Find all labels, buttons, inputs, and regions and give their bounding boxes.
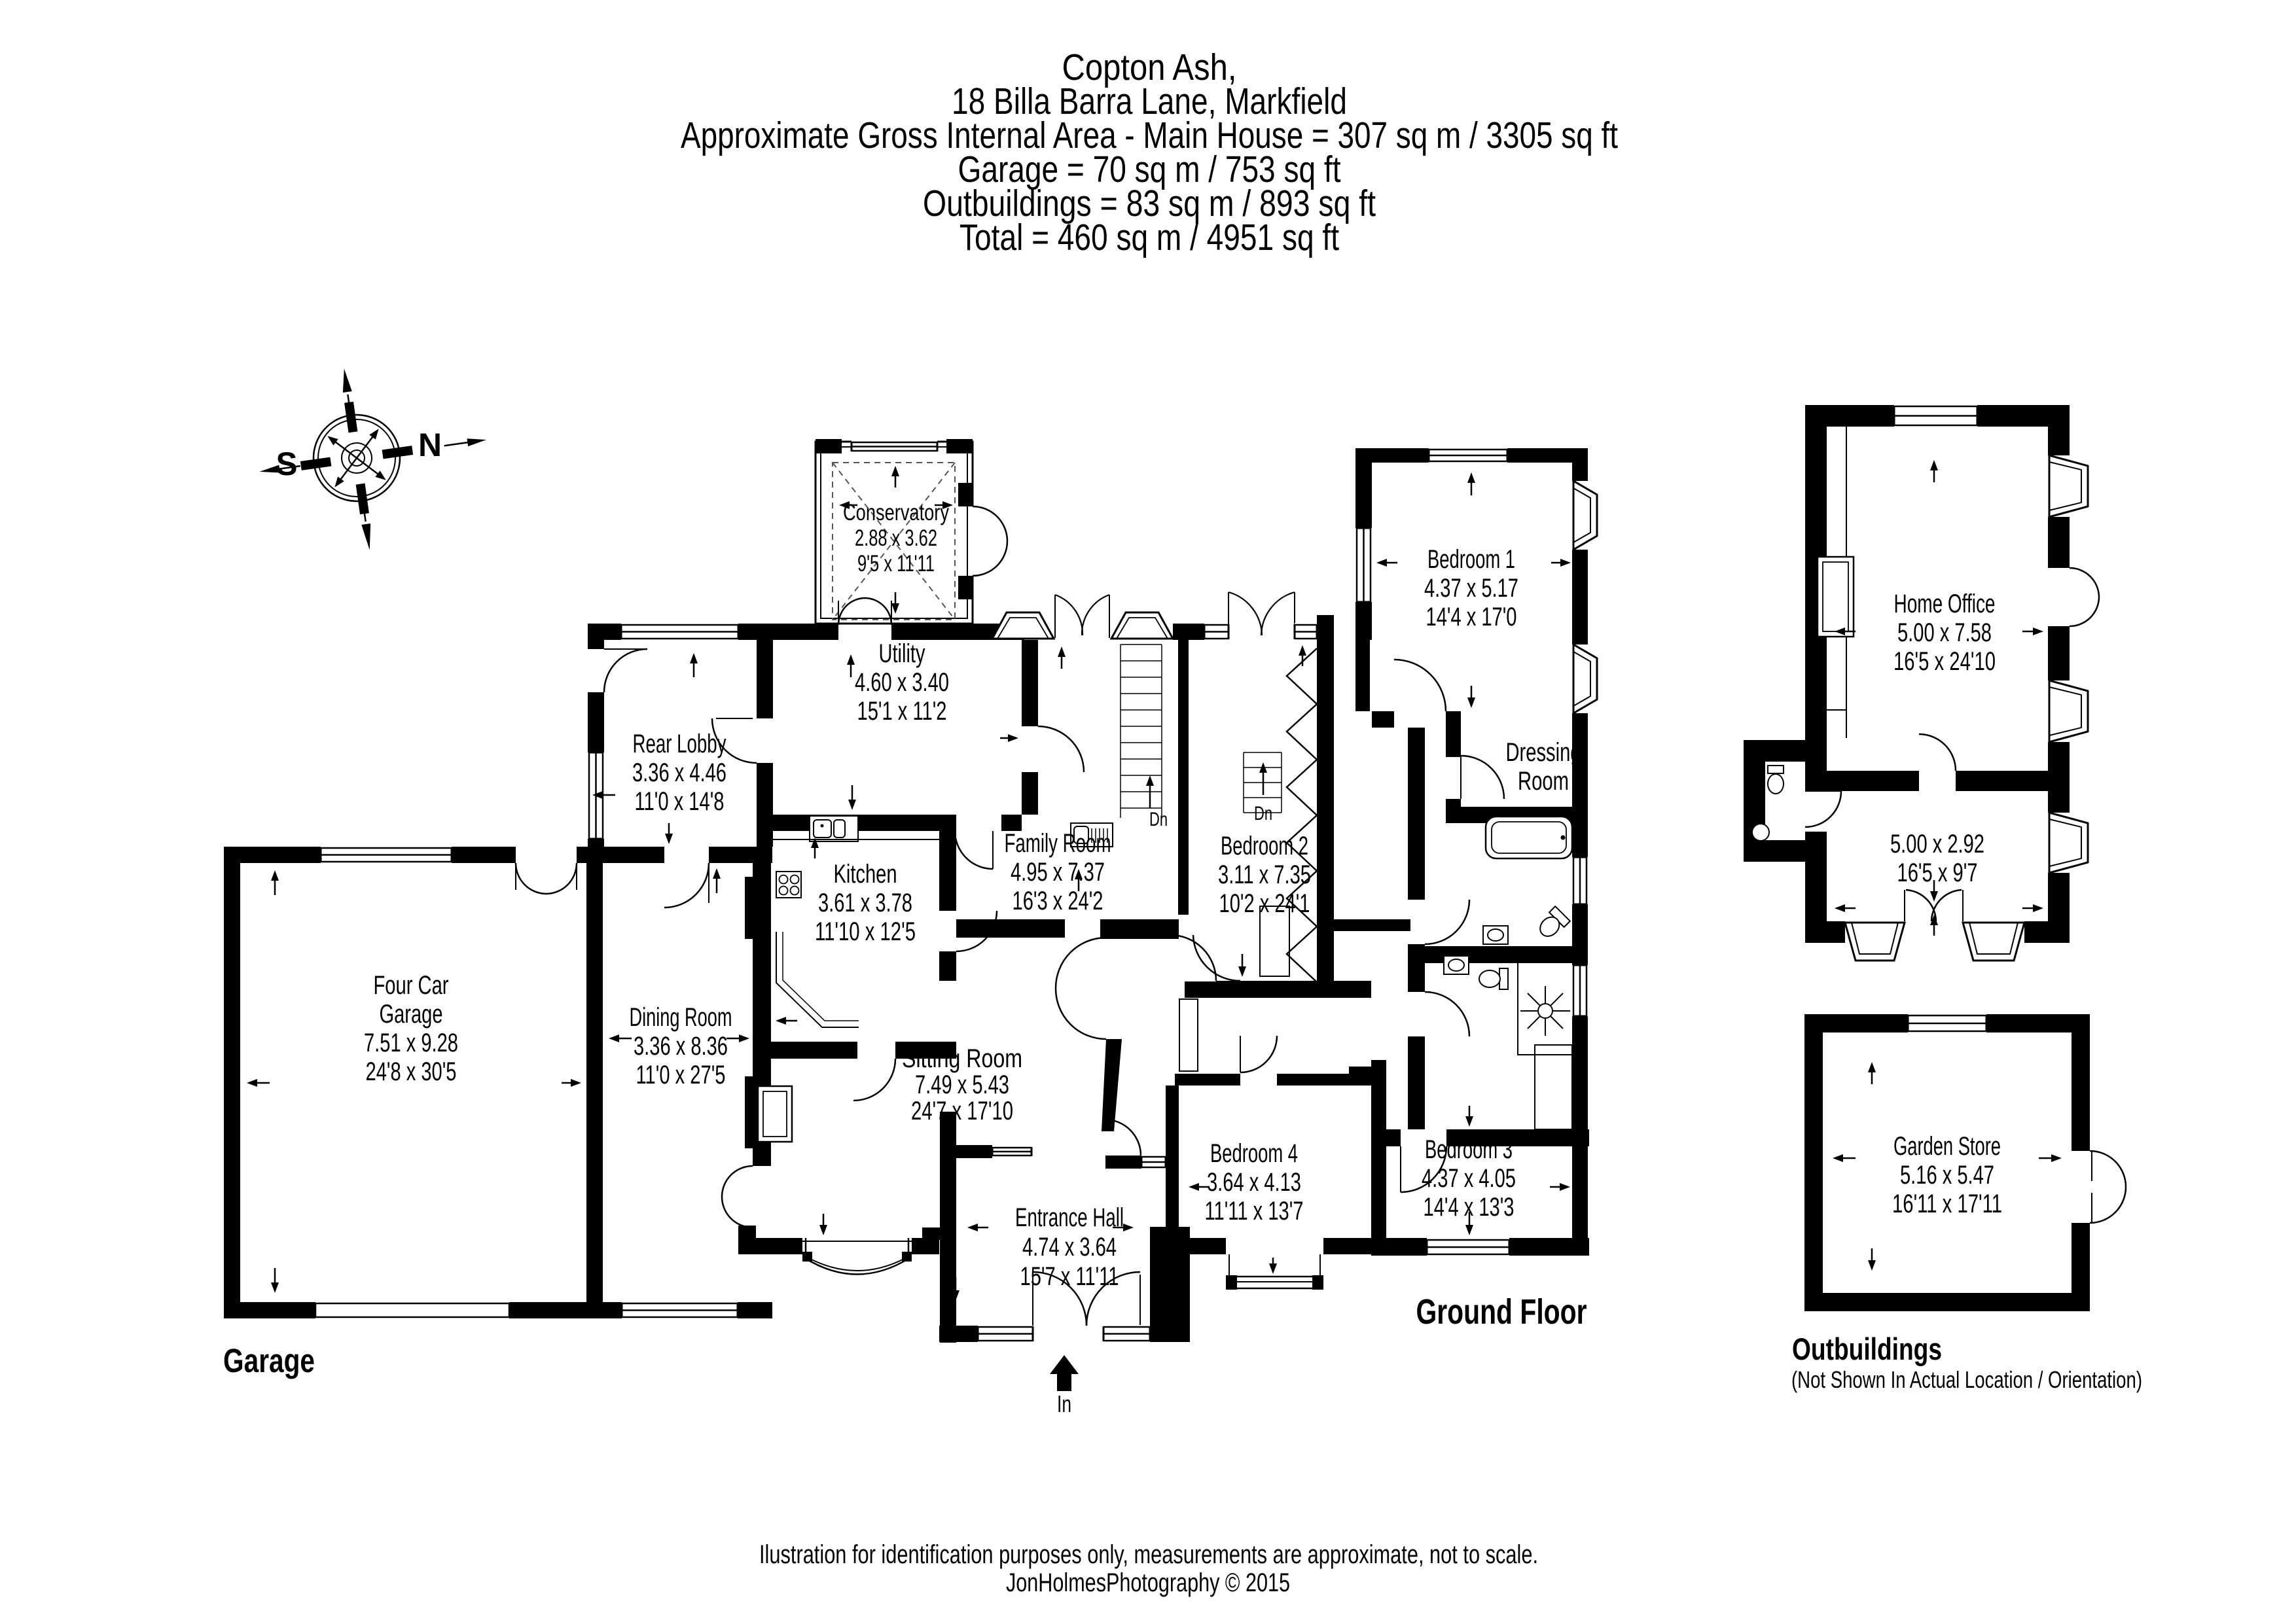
svg-text:10'2 x 24'1: 10'2 x 24'1 xyxy=(1219,889,1310,918)
svg-text:N: N xyxy=(418,427,442,463)
svg-text:11'0 x 27'5: 11'0 x 27'5 xyxy=(636,1061,726,1089)
svg-text:2.88 x 3.62: 2.88 x 3.62 xyxy=(855,525,937,551)
svg-text:11'11 x 13'7: 11'11 x 13'7 xyxy=(1205,1197,1304,1226)
svg-text:Ground Floor: Ground Floor xyxy=(1416,1292,1587,1332)
svg-text:24'7 x 17'10: 24'7 x 17'10 xyxy=(911,1097,1013,1125)
svg-text:Rear Lobby: Rear Lobby xyxy=(633,730,726,758)
svg-text:11'10 x 12'5: 11'10 x 12'5 xyxy=(815,917,916,946)
svg-text:Dn: Dn xyxy=(1254,803,1272,824)
svg-text:Bedroom 4: Bedroom 4 xyxy=(1210,1139,1298,1168)
svg-text:Conservatory: Conservatory xyxy=(843,500,949,525)
svg-text:Four Car: Four Car xyxy=(374,971,449,1000)
svg-text:In: In xyxy=(1057,1390,1071,1417)
svg-text:Ilustration for identification: Ilustration for identification purposes … xyxy=(759,1540,1538,1569)
svg-text:9'5 x 11'11: 9'5 x 11'11 xyxy=(857,551,935,576)
svg-text:Family Room: Family Room xyxy=(1005,829,1111,858)
svg-text:Utility: Utility xyxy=(879,639,925,668)
svg-text:Room: Room xyxy=(1518,767,1569,796)
svg-text:5.16 x 5.47: 5.16 x 5.47 xyxy=(1900,1161,1994,1190)
svg-text:Garden Store: Garden Store xyxy=(1893,1132,2001,1161)
svg-text:(Not Shown In Actual Location: (Not Shown In Actual Location / Orientat… xyxy=(1791,1366,2142,1393)
svg-text:Kitchen: Kitchen xyxy=(834,860,897,889)
svg-text:3.61 x 3.78: 3.61 x 3.78 xyxy=(818,889,912,917)
svg-text:5.00 x 2.92: 5.00 x 2.92 xyxy=(1890,830,1984,858)
svg-text:3.36 x 4.46: 3.36 x 4.46 xyxy=(632,758,726,787)
svg-text:16'3 x 24'2: 16'3 x 24'2 xyxy=(1013,887,1103,915)
svg-text:JonHolmesPhotography © 2015: JonHolmesPhotography © 2015 xyxy=(1006,1568,1290,1597)
svg-text:Bedroom 1: Bedroom 1 xyxy=(1427,545,1515,574)
svg-text:S: S xyxy=(276,446,298,482)
svg-text:4.95 x 7.37: 4.95 x 7.37 xyxy=(1011,858,1105,887)
svg-text:14'4 x 17'0: 14'4 x 17'0 xyxy=(1426,603,1517,631)
svg-text:4.37 x 5.17: 4.37 x 5.17 xyxy=(1424,574,1518,603)
svg-text:4.74 x 3.64: 4.74 x 3.64 xyxy=(1022,1233,1117,1262)
svg-text:Dining Room: Dining Room xyxy=(630,1003,732,1032)
svg-text:11'0 x 14'8: 11'0 x 14'8 xyxy=(635,787,725,816)
svg-text:4.37 x 4.05: 4.37 x 4.05 xyxy=(1422,1164,1516,1193)
svg-text:Dressing: Dressing xyxy=(1506,738,1581,767)
svg-text:15'7 x 11'11: 15'7 x 11'11 xyxy=(1020,1262,1119,1291)
svg-text:Garage: Garage xyxy=(223,1342,315,1379)
svg-text:Sitting Room: Sitting Room xyxy=(902,1044,1022,1073)
svg-text:3.36 x 8.36: 3.36 x 8.36 xyxy=(634,1032,728,1061)
svg-text:4.60 x 3.40: 4.60 x 3.40 xyxy=(855,668,949,697)
svg-text:7.51 x 9.28: 7.51 x 9.28 xyxy=(364,1029,458,1057)
svg-text:7.49 x 5.43: 7.49 x 5.43 xyxy=(915,1070,1009,1099)
svg-text:Total = 460 sq m / 4951 sq ft: Total = 460 sq m / 4951 sq ft xyxy=(960,217,1339,258)
svg-text:Outbuildings: Outbuildings xyxy=(1792,1332,1942,1366)
svg-text:16'5 x 24'10: 16'5 x 24'10 xyxy=(1893,647,1996,676)
svg-text:24'8 x 30'5: 24'8 x 30'5 xyxy=(366,1057,457,1086)
svg-text:Bedroom 3: Bedroom 3 xyxy=(1425,1135,1513,1164)
svg-text:Dn: Dn xyxy=(1149,809,1168,830)
svg-text:15'1 x 11'2: 15'1 x 11'2 xyxy=(857,697,947,726)
svg-text:16'5 x 9'7: 16'5 x 9'7 xyxy=(1897,858,1978,887)
svg-text:3.11 x 7.35: 3.11 x 7.35 xyxy=(1218,860,1311,889)
svg-text:Garage: Garage xyxy=(380,1000,443,1029)
svg-text:5.00 x 7.58: 5.00 x 7.58 xyxy=(1897,618,1992,647)
svg-text:16'11 x 17'11: 16'11 x 17'11 xyxy=(1892,1190,2002,1218)
svg-text:3.64 x 4.13: 3.64 x 4.13 xyxy=(1207,1168,1301,1197)
svg-text:Entrance Hall: Entrance Hall xyxy=(1015,1203,1124,1232)
svg-text:Home Office: Home Office xyxy=(1894,590,1996,618)
